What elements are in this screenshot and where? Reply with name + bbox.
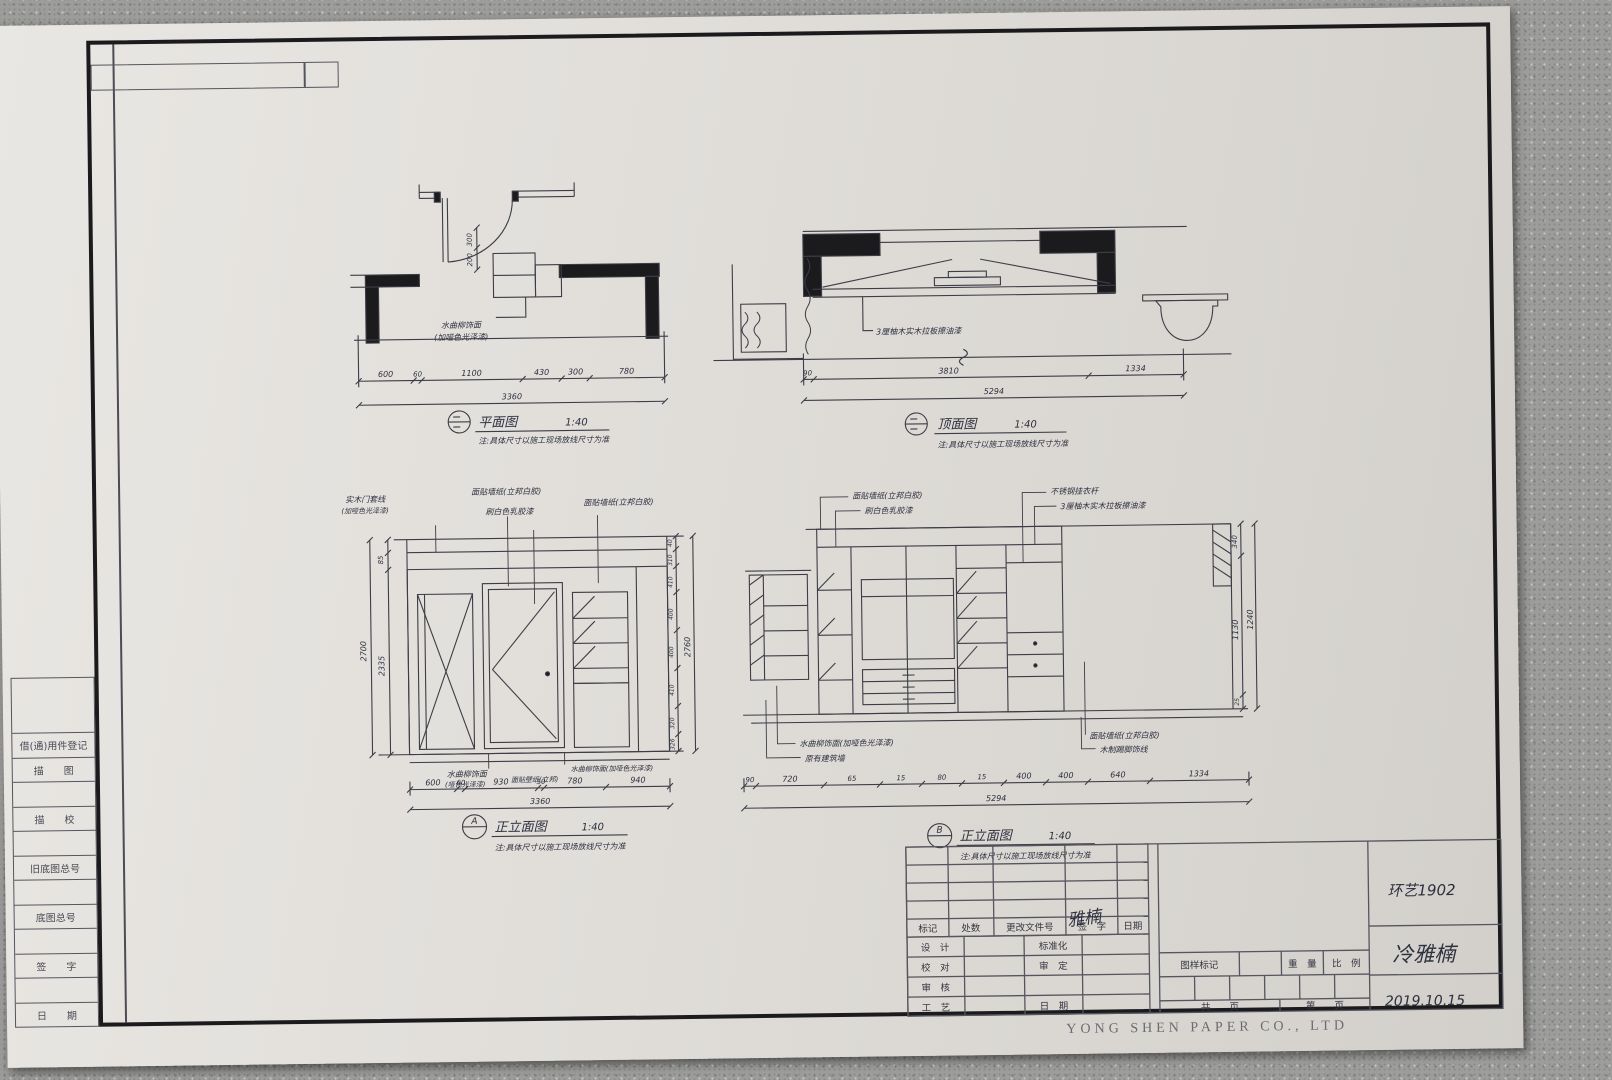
dim-label: 410 (669, 684, 676, 696)
material-annotation: 刷白色乳胶漆 (485, 507, 534, 517)
sidebar-empty-cell (12, 678, 95, 733)
field-craft: 工 艺 (922, 1003, 951, 1014)
drawing-title: 顶面图 (937, 417, 978, 433)
material-annotation: 面贴墙纸(立邦白胶) (583, 497, 653, 507)
dim-label: 310 (667, 554, 674, 566)
sidebar-empty-cell (13, 781, 95, 807)
dim-total-label: 2700 (359, 641, 368, 661)
dim-label: 940 (630, 776, 645, 785)
drawing-note: 注:具体尺寸以施工现场放线尺寸为准 (495, 842, 627, 853)
drawing-note: 注:具体尺寸以施工现场放线尺寸为准 (478, 435, 610, 446)
dim-label: 640 (1110, 770, 1125, 779)
drawing-scale: 1:40 (1014, 419, 1037, 430)
dim-label: 3810 (938, 366, 958, 375)
dim-label: 400 (1016, 771, 1031, 780)
sidebar-row-date: 日 期 (16, 1001, 98, 1027)
dim-label: 60 (456, 779, 466, 787)
material-annotation: 3厘柚木实木拉板擦油漆 (876, 326, 962, 336)
dim-total-label: 3360 (530, 797, 550, 806)
dim-total-label: 5294 (986, 794, 1006, 803)
field-standardization: 标准化 (1039, 940, 1068, 952)
paper-manufacturer-print: YONG SHEN PAPER CO., LTD (1037, 1018, 1377, 1038)
ceiling-section-drawing: 90 3810 1334 5294 3厘柚木实木拉板擦油漆 顶面图 1:40 注… (711, 198, 1235, 495)
material-annotation: (加哑色光泽漆) (341, 507, 389, 516)
plan-view-drawing: 600 60 1100 430 300 780 3360 300 200 水曲柳… (344, 167, 678, 471)
dim-label: 90 (745, 776, 755, 784)
sidebar-empty-cell (15, 977, 97, 1003)
dim-label: 1334 (1125, 364, 1145, 373)
dim-label: 1100 (461, 369, 481, 378)
dim-total-label: 1240 (1246, 609, 1255, 629)
drawing-scale: 1:40 (1049, 831, 1072, 842)
dim-label: 400 (1058, 771, 1073, 780)
field-review: 审 核 (921, 982, 950, 994)
dim-label: 85 (377, 555, 385, 565)
field-weight: 重 量 (1288, 958, 1317, 970)
material-annotation: 水曲柳饰面 (441, 321, 483, 331)
dim-label: 326 (669, 738, 676, 750)
dim-label: 1130 (1231, 620, 1240, 640)
dim-label: 780 (567, 776, 582, 785)
sidebar-row-old-base-no: 旧底图总号 (14, 854, 96, 880)
dim-total-label: 2760 (683, 637, 692, 657)
material-annotation: 实木门套线 (345, 495, 386, 505)
drawing-scale: 1:40 (565, 417, 588, 428)
sidebar-row-signature: 签 字 (15, 952, 97, 978)
drawing-title: 正立面图 (494, 820, 548, 836)
field-proofread: 校 对 (921, 962, 950, 974)
elevation-ref: B (936, 826, 942, 836)
material-annotation: 面贴墙纸(立邦白胶) (852, 491, 922, 501)
dim-label: 65 (847, 775, 857, 783)
dim-label: 60 (413, 370, 423, 378)
dim-label: 720 (782, 775, 797, 784)
handwritten-date: 2019.10.15 (1385, 993, 1465, 1010)
dim-label: 600 (378, 370, 393, 379)
dim-label: 15 (977, 773, 987, 781)
dim-label: 40 (667, 539, 674, 547)
handwritten-author-name: 冷雅楠 (1392, 942, 1458, 967)
dim-label: 600 (425, 778, 440, 787)
field-page-no: 第 页 (1306, 999, 1344, 1011)
strip-divider (304, 63, 306, 87)
dim-label: 300 (568, 367, 583, 376)
elevation-a-drawing: 实木门套线 (加哑色光泽漆) 面贴墙纸(立邦白胶) 刷白色乳胶漆 面贴墙纸(立邦… (335, 472, 716, 907)
dim-total-label: 3360 (502, 392, 522, 401)
field-drawing-mark: 图样标记 (1180, 959, 1219, 972)
sidebar-empty-cell (14, 830, 96, 856)
elevation-ref: A (470, 817, 477, 827)
dim-label: 930 (493, 777, 508, 786)
material-annotation: 刷白色乳胶漆 (864, 506, 913, 516)
sidebar-row-trace-check: 描 校 (13, 805, 95, 831)
dim-label: 400 (668, 646, 675, 658)
title-block: 标记 处数 更改文件号 签 字 日期 设 计 标准化 校 对 审 定 审 核 工… (905, 838, 1505, 1018)
revision-header-count: 处数 (961, 922, 981, 934)
field-scale: 比 例 (1332, 957, 1361, 969)
drafting-paper-sheet: 借(通)用件登记 描 图 描 校 旧底图总号 底图总号 签 字 日 期 (0, 6, 1524, 1068)
photo-of-drawing-sheet: 借(通)用件登记 描 图 描 校 旧底图总号 底图总号 签 字 日 期 (0, 0, 1612, 1080)
revision-header-docno: 更改文件号 (1006, 921, 1054, 934)
revision-header-mark: 标记 (918, 923, 938, 935)
field-date: 日 期 (1040, 1001, 1069, 1012)
drawing-note: 注:具体尺寸以施工现场放线尺寸为准 (938, 439, 1070, 450)
drawing-title: 正立面图 (960, 829, 1014, 845)
revision-header-date: 日期 (1123, 921, 1142, 932)
dim-label: 25 (1234, 698, 1241, 706)
dim-label: 2335 (377, 656, 386, 676)
material-annotation: (加哑色光泽漆) (434, 333, 488, 343)
dim-label: 15 (896, 774, 906, 782)
sidebar-row-trace-drawing: 描 图 (13, 756, 95, 782)
material-annotation: 水曲柳饰面(加哑色光泽漆) (571, 764, 654, 773)
sidebar-empty-cell (15, 928, 97, 954)
top-left-title-strip (91, 61, 339, 90)
material-annotation: 面贴墙纸(立邦白胶) (1089, 731, 1159, 741)
dim-total-label: 5294 (984, 387, 1004, 396)
dim-label: 200 (466, 253, 474, 267)
material-annotation: 水曲柳饰面(加哑色光泽漆) (799, 738, 893, 748)
material-annotation: 面贴壁纸(立邦) (511, 776, 559, 785)
material-annotation: 面贴墙纸(立邦白胶) (471, 487, 541, 497)
dim-label: 320 (669, 717, 676, 729)
material-annotation: 不锈钢挂衣杆 (1050, 487, 1100, 497)
dim-label: 430 (534, 368, 549, 377)
sidebar-empty-cell (14, 879, 96, 905)
material-annotation: 水曲柳饰面 (447, 770, 489, 780)
field-total-pages: 共 页 (1201, 1002, 1239, 1013)
handwritten-class-name: 环艺1902 (1387, 881, 1455, 900)
sidebar-row-borrow-register: 借(通)用件登记 (12, 732, 94, 758)
material-annotation: 木制踢脚饰线 (1100, 745, 1149, 755)
dim-label: 340 (1231, 535, 1239, 549)
dim-label: 410 (667, 576, 674, 588)
dim-label: 780 (619, 367, 634, 376)
dim-label: 80 (937, 774, 947, 782)
drawing-scale: 1:40 (581, 822, 604, 833)
drawing-title: 平面图 (478, 415, 519, 431)
dim-label: 400 (668, 608, 675, 620)
dim-label: 90 (803, 369, 813, 377)
field-approve: 审 定 (1039, 960, 1068, 972)
dim-label: 50 (536, 778, 546, 786)
dim-label: 300 (466, 233, 474, 247)
material-annotation: 原有建筑墙 (805, 754, 846, 764)
left-registration-table: 借(通)用件登记 描 图 描 校 旧底图总号 底图总号 签 字 日 期 (11, 677, 100, 1028)
field-design: 设 计 (921, 942, 950, 954)
material-annotation: 3厘柚木实木拉板擦油漆 (1060, 501, 1146, 511)
sidebar-row-base-no: 底图总号 (14, 903, 96, 929)
dim-label: 1334 (1189, 769, 1209, 778)
